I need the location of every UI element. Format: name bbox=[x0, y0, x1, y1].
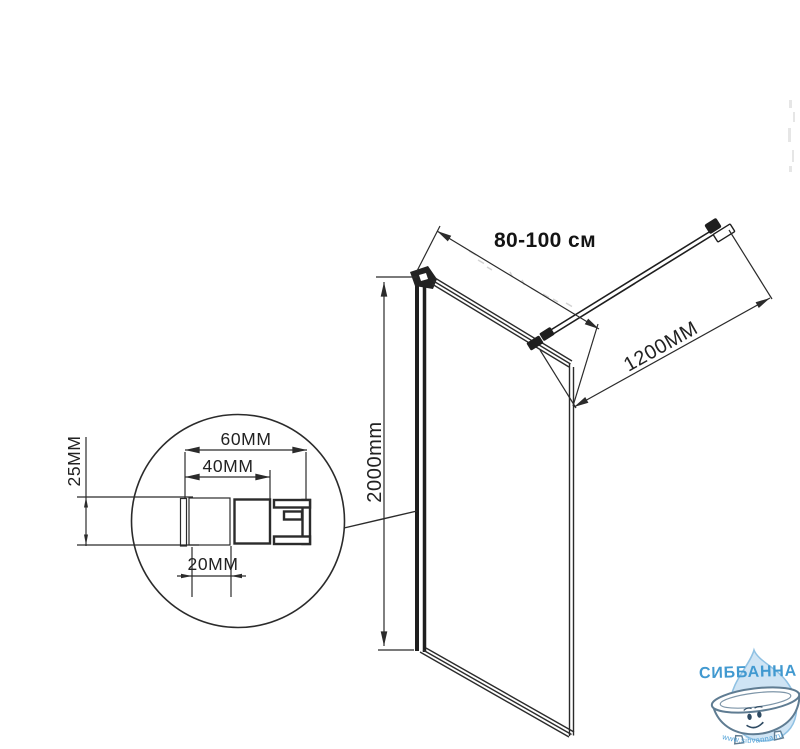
detail-25mm-label: 25MM bbox=[64, 435, 84, 486]
dimension-bar-length: 1200MM bbox=[540, 230, 772, 408]
wall-flange-section bbox=[181, 499, 187, 547]
sibvanna-watermark: СИББАННА www.sibvanna.ru bbox=[699, 650, 800, 747]
wall-profile bbox=[410, 266, 437, 652]
dimension-height: 2000mm bbox=[364, 277, 417, 650]
shower-screen-technical-drawing: 80-100 см 1200MM 2000mm 60MM bbox=[0, 0, 800, 749]
edge-noise bbox=[788, 100, 795, 172]
glass-panel bbox=[420, 278, 574, 737]
detail-60mm-label: 60MM bbox=[220, 429, 271, 449]
detail-dimension-20mm: 20MM bbox=[177, 546, 246, 597]
detail-leader-line bbox=[344, 511, 417, 528]
detail-40mm-label: 40MM bbox=[202, 456, 253, 476]
glass-channel-section bbox=[274, 500, 310, 544]
technical-drawing-svg: 80-100 см 1200MM 2000mm 60MM bbox=[0, 0, 800, 749]
width-range-label: 80-100 см bbox=[494, 229, 596, 252]
outer-box-section bbox=[189, 498, 230, 545]
height-label: 2000mm bbox=[364, 421, 386, 502]
inner-box-section bbox=[235, 500, 271, 544]
detail-dimension-40mm: 40MM bbox=[185, 456, 270, 500]
detail-20mm-label: 20MM bbox=[187, 554, 238, 574]
dimension-width-range: 80-100 см bbox=[417, 226, 599, 406]
detail-profile-section bbox=[181, 498, 311, 546]
bar-length-label: 1200MM bbox=[620, 317, 702, 376]
brand-name: СИББАННА bbox=[699, 663, 797, 683]
wall-bracket bbox=[704, 218, 735, 242]
bar-clamp bbox=[526, 327, 555, 351]
